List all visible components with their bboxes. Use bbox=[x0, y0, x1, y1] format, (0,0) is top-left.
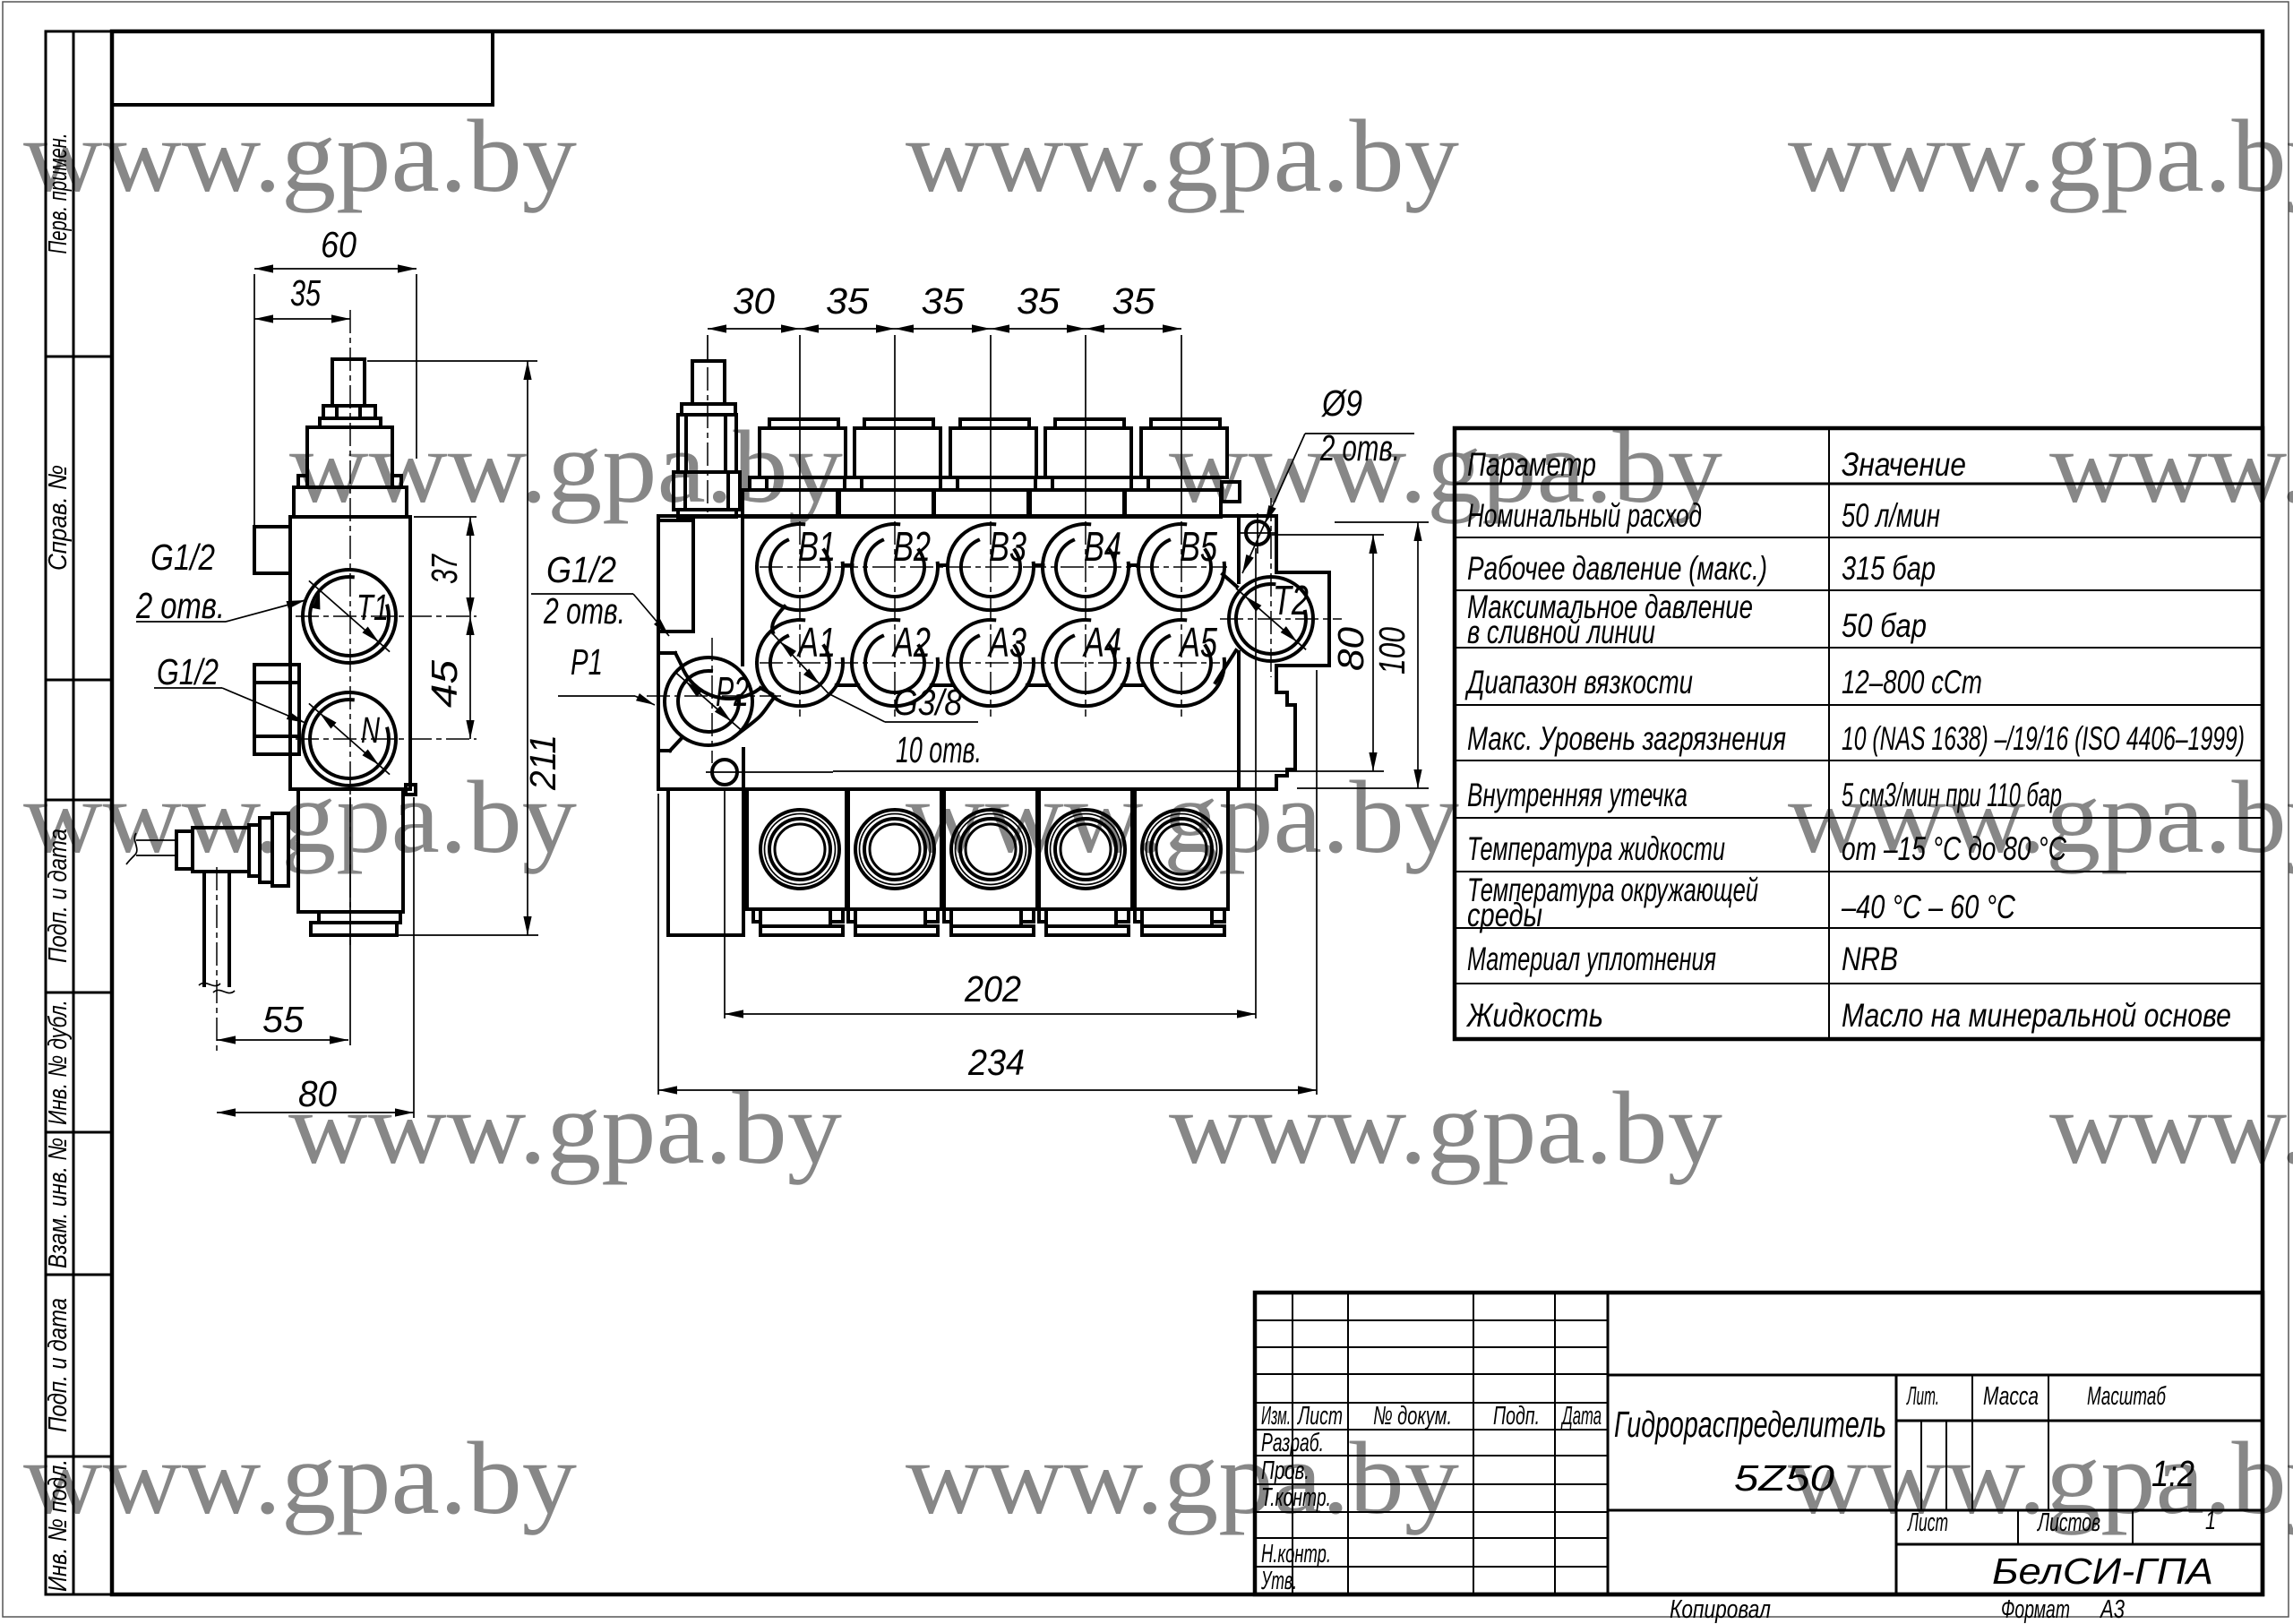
svg-text:Диапазон вязкости: Диапазон вязкости bbox=[1464, 664, 1693, 700]
svg-text:T2: T2 bbox=[1273, 577, 1309, 623]
svg-text:55: 55 bbox=[262, 999, 304, 1040]
svg-text:A2: A2 bbox=[891, 619, 931, 666]
svg-text:www.gpa.by: www.gpa.by bbox=[906, 760, 1459, 875]
svg-text:Н.контр.: Н.контр. bbox=[1261, 1540, 1331, 1568]
svg-text:45: 45 bbox=[424, 660, 465, 708]
svg-text:B3: B3 bbox=[989, 523, 1026, 570]
svg-text:12–800 сСт: 12–800 сСт bbox=[1842, 664, 1982, 700]
svg-text:Утв.: Утв. bbox=[1260, 1567, 1297, 1595]
svg-text:10 (NAS 1638) –/19/16 (ISO 440: 10 (NAS 1638) –/19/16 (ISO 4406–1999) bbox=[1842, 720, 2245, 757]
svg-text:Копировал: Копировал bbox=[1670, 1595, 1771, 1624]
svg-text:80: 80 bbox=[1330, 627, 1371, 671]
svg-text:P1: P1 bbox=[571, 641, 603, 683]
svg-text:www.gpa.by: www.gpa.by bbox=[288, 1071, 842, 1186]
svg-text:–40 °С – 60 °С: –40 °С – 60 °С bbox=[1841, 889, 2015, 925]
svg-text:315 бар: 315 бар bbox=[1842, 550, 1936, 587]
svg-text:G1/2: G1/2 bbox=[157, 651, 219, 692]
svg-text:среды: среды bbox=[1467, 897, 1542, 933]
svg-text:Масштаб: Масштаб bbox=[2087, 1382, 2167, 1411]
svg-text:БелСИ-ГПА: БелСИ-ГПА bbox=[1992, 1551, 2213, 1592]
svg-text:100: 100 bbox=[1371, 627, 1413, 675]
svg-text:37: 37 bbox=[424, 553, 465, 584]
svg-text:Подп. и дата: Подп. и дата bbox=[44, 1298, 73, 1432]
svg-text:60: 60 bbox=[321, 224, 356, 265]
svg-text:A3: A3 bbox=[987, 619, 1027, 666]
svg-text:www.gpa.by: www.gpa.by bbox=[23, 1422, 577, 1536]
svg-text:www.gpa.by: www.gpa.by bbox=[289, 410, 843, 525]
svg-text:Справ. №: Справ. № bbox=[44, 465, 73, 571]
svg-text:A5: A5 bbox=[1178, 619, 1218, 666]
svg-text:Подп.: Подп. bbox=[1493, 1402, 1540, 1431]
svg-text:G1/2: G1/2 bbox=[546, 549, 616, 590]
svg-text:Значение: Значение bbox=[1842, 446, 1966, 483]
svg-text:www.gpa.by: www.gpa.by bbox=[1169, 410, 1722, 525]
svg-text:www.gpa.by: www.gpa.by bbox=[23, 760, 577, 875]
svg-text:B4: B4 bbox=[1084, 523, 1121, 570]
svg-text:Инв. № дубл.: Инв. № дубл. bbox=[44, 1000, 73, 1125]
svg-text:www.gpa.by: www.gpa.by bbox=[906, 99, 1459, 214]
svg-text:B2: B2 bbox=[893, 523, 931, 570]
svg-text:50 л/мин: 50 л/мин bbox=[1842, 497, 1940, 534]
svg-text:35: 35 bbox=[290, 272, 321, 314]
svg-text:2 отв.: 2 отв. bbox=[543, 590, 625, 632]
svg-text:P2: P2 bbox=[716, 668, 749, 715]
svg-text:www.gpa.by: www.gpa.by bbox=[906, 1422, 1459, 1536]
svg-text:Дата: Дата bbox=[1560, 1402, 1602, 1431]
svg-text:Масло на минеральной основе: Масло на минеральной основе bbox=[1842, 997, 2231, 1034]
svg-text:www.gpa.by: www.gpa.by bbox=[1788, 1422, 2293, 1536]
svg-text:G3/8: G3/8 bbox=[893, 682, 962, 723]
svg-text:Макс. Уровень загрязнения: Макс. Уровень загрязнения bbox=[1467, 720, 1786, 757]
svg-text:T1: T1 bbox=[356, 587, 389, 628]
svg-text:50 бар: 50 бар bbox=[1842, 607, 1927, 644]
svg-text:Лит.: Лит. bbox=[1906, 1382, 1939, 1411]
svg-text:234: 234 bbox=[967, 1042, 1025, 1083]
svg-text:35: 35 bbox=[922, 280, 965, 322]
svg-text:www.gpa.by: www.gpa.by bbox=[23, 99, 577, 214]
svg-text:www.gpa.by: www.gpa.by bbox=[1788, 99, 2293, 214]
svg-text:Температура жидкости: Температура жидкости bbox=[1467, 830, 1725, 867]
svg-text:35: 35 bbox=[826, 280, 869, 322]
svg-text:2 отв.: 2 отв. bbox=[135, 585, 225, 626]
svg-text:www.gpa.by: www.gpa.by bbox=[2049, 1071, 2293, 1186]
svg-text:Масса: Масса bbox=[1983, 1382, 2039, 1411]
svg-text:www.gpa.by: www.gpa.by bbox=[1169, 1071, 1722, 1186]
svg-text:A4: A4 bbox=[1082, 619, 1121, 666]
svg-text:Жидкость: Жидкость bbox=[1465, 997, 1603, 1034]
svg-text:NRB: NRB bbox=[1842, 941, 1898, 977]
svg-text:Материал уплотнения: Материал уплотнения bbox=[1467, 941, 1716, 977]
svg-text:в сливной линии: в сливной линии bbox=[1467, 614, 1655, 650]
svg-text:A1: A1 bbox=[796, 619, 836, 666]
svg-text:А3: А3 bbox=[2099, 1595, 2125, 1624]
svg-text:www.gpa.by: www.gpa.by bbox=[2049, 410, 2293, 525]
svg-text:30: 30 bbox=[733, 280, 775, 322]
svg-text:N: N bbox=[361, 709, 380, 751]
svg-text:Взам. инв. №: Взам. инв. № bbox=[44, 1138, 73, 1268]
svg-text:202: 202 bbox=[964, 968, 1021, 1010]
svg-text:35: 35 bbox=[1017, 280, 1060, 322]
svg-text:Внутренняя утечка: Внутренняя утечка bbox=[1467, 777, 1688, 813]
svg-text:B1: B1 bbox=[798, 523, 836, 570]
svg-text:G1/2: G1/2 bbox=[150, 537, 215, 578]
svg-text:Рабочее давление (макс.): Рабочее давление (макс.) bbox=[1467, 550, 1767, 587]
svg-text:35: 35 bbox=[1112, 280, 1155, 322]
svg-text:Формат: Формат bbox=[2001, 1595, 2070, 1624]
svg-text:B5: B5 bbox=[1180, 523, 1217, 570]
svg-text:www.gpa.by: www.gpa.by bbox=[1788, 760, 2293, 875]
